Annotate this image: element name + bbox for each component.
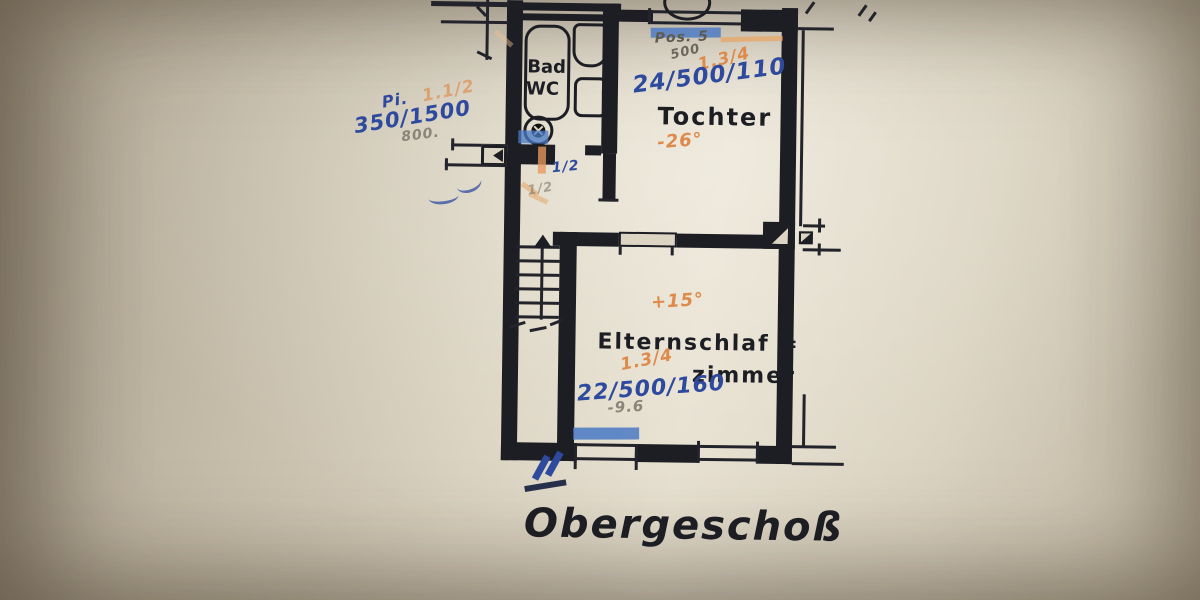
highlight-drain-blue (518, 130, 548, 143)
window-bottom2-sill-outer (697, 445, 759, 449)
ann-eltern-orange-temp: +15° (650, 289, 704, 313)
dim-rightlow-tick1 (818, 218, 821, 232)
ann-eltern-blue-dim: 22/500/160 (576, 371, 726, 407)
mark-topright-3 (868, 11, 877, 22)
window-bottom2-sill-inner (697, 458, 759, 462)
highlight-window-bottom-blue (573, 427, 639, 439)
tochter-label: Tochter (657, 102, 772, 132)
ann-hall-pencil-half: 1/2 (527, 180, 555, 199)
wall-bottom-a (501, 442, 577, 461)
dim-botright-vert (802, 394, 806, 446)
blue-curve-mark-2 (428, 187, 460, 206)
bath-label-line1: Bad (527, 56, 566, 78)
mark-topright-2 (858, 4, 868, 16)
highlight-door-orange (538, 147, 546, 174)
floorplan-photo: Bad WC Tochter Elternschlaf = zimmer 1.1… (0, 0, 1200, 600)
stair-tread-3 (515, 273, 559, 277)
dim-topleft-vert (485, 0, 489, 60)
floor-title: Obergeschoß (524, 500, 844, 550)
eltern-door-threshold (619, 232, 677, 248)
stair-walkline (540, 242, 544, 320)
highlight-window-top-orange (721, 36, 783, 42)
tochter-door-jamb-tick (598, 198, 618, 201)
dim-botright-line1 (792, 445, 836, 449)
window-bottom1-sill-outer (574, 443, 638, 447)
dim-leftmid-tick2 (445, 158, 448, 170)
dim-rightlow-line2 (803, 248, 841, 252)
ann-hall-blue-half: 1/2 (551, 158, 580, 176)
shaft-symbol-flag (493, 149, 503, 162)
door-swing-arc (663, 0, 711, 21)
dim-rightlow-line1 (803, 224, 825, 227)
dim-topleft-line1 (431, 1, 509, 7)
stair-direction-arrow (534, 235, 552, 248)
stair-tread-5 (515, 301, 559, 305)
stair-cutline-dash-2 (529, 326, 546, 332)
dim-leftmid-line2 (445, 163, 507, 167)
stair-tread-2 (516, 259, 560, 263)
window-bottom1-jamb-left (574, 443, 577, 469)
ann-top-pencil-pos: Pos. 5 (654, 29, 709, 47)
wall-left-outer (501, 0, 523, 460)
blue-check-underline (524, 479, 566, 492)
wall-tochter-top-corner (741, 9, 798, 32)
dim-leftmid-tick1 (451, 138, 454, 150)
dim-botright-line2 (792, 462, 844, 466)
eltern-door-jamb-left (619, 247, 622, 255)
window-bottom1-sill-inner (574, 457, 638, 461)
dim-right-vert (799, 30, 805, 226)
ann-tochter-orange-temp: -26° (657, 129, 704, 153)
window-bottom2-jamb-right (756, 442, 759, 464)
window-bottom2-jamb-left (697, 441, 700, 463)
window-top-sill-inner (649, 21, 745, 25)
dim-topleft-line2 (441, 20, 509, 24)
ann-left-pencil: 800. (400, 125, 440, 146)
wall-bottom-c (757, 446, 792, 464)
dim-rightlow-tick2 (818, 243, 821, 255)
toilet (574, 77, 609, 117)
wall-pillar-chimney (763, 222, 795, 249)
floorplan-drawing: Bad WC Tochter Elternschlaf = zimmer 1.1… (0, 0, 1200, 600)
ann-eltern-pencil: -9.6 (607, 397, 645, 417)
washbasin (572, 23, 609, 67)
stair-tread-4 (515, 287, 559, 291)
window-top-jamb-left (648, 8, 651, 24)
window-bottom1-jamb-right (635, 444, 638, 470)
bath-label-line2: WC (526, 78, 559, 99)
stair-tread-6 (515, 315, 559, 319)
toilet-wall-tick (602, 90, 608, 95)
wall-bath-bottom-right (585, 145, 601, 155)
mark-topright-1 (805, 1, 816, 14)
eltern-door-jamb-right (671, 247, 674, 255)
wall-bottom-b (635, 444, 699, 463)
wall-tochter-left (602, 153, 616, 201)
